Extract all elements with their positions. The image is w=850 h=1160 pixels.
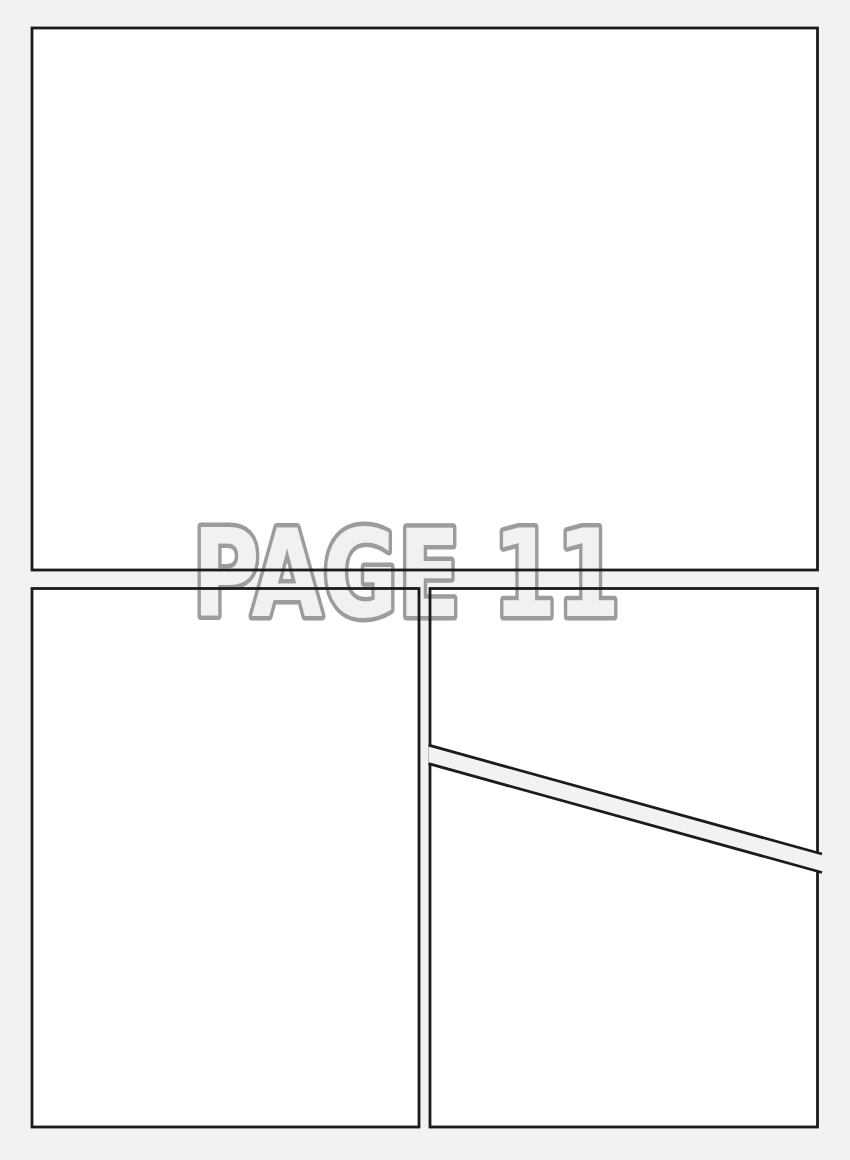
comic-page-template: PAGE 11: [0, 0, 850, 1160]
page-number-watermark: PAGE 11: [193, 504, 621, 645]
panel-bottom-left-fill: [32, 589, 419, 1128]
panel-top-fill: [32, 28, 818, 570]
panel-bottom-right-fill: [430, 589, 818, 1128]
